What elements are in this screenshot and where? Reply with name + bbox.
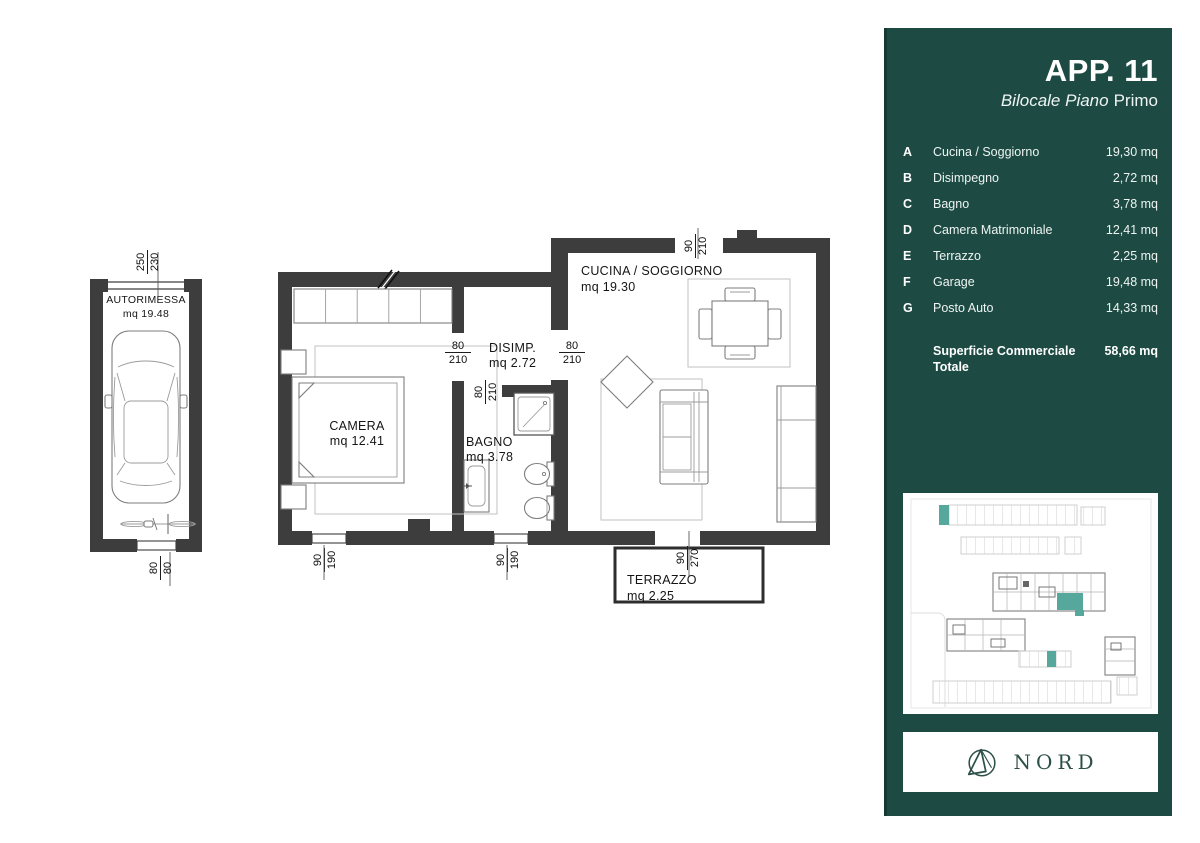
- bicycle-icon: [120, 514, 196, 534]
- room-name: Cucina / Soggiorno: [933, 145, 1106, 159]
- subtitle-italic: Bilocale Piano: [1001, 91, 1109, 110]
- svg-text:90: 90: [312, 554, 324, 566]
- dim-camera-door: 80 210: [445, 340, 471, 366]
- floor-plan-drawing: 250 230 80 80 AUTORIMESSA mq 19.48: [0, 0, 884, 843]
- sink: [462, 460, 489, 512]
- bagno-area: mq 3.78: [466, 450, 513, 464]
- north-indicator: NORD: [903, 732, 1158, 792]
- car-icon: [105, 331, 187, 503]
- room-name: Disimpegno: [933, 171, 1113, 185]
- total-label: Superficie Commerciale Totale: [933, 343, 1085, 376]
- room-row-d: D Camera Matrimoniale 12,41 mq: [903, 223, 1158, 249]
- floorplan-page: 250 230 80 80 AUTORIMESSA mq 19.48: [0, 0, 1200, 843]
- bagno-label: BAGNO: [466, 435, 513, 449]
- svg-text:270: 270: [689, 549, 701, 567]
- bidet: [525, 496, 555, 520]
- room-row-g: G Posto Auto 14,33 mq: [903, 301, 1158, 327]
- room-letter: D: [903, 223, 933, 237]
- svg-text:80: 80: [148, 562, 160, 574]
- svg-text:210: 210: [563, 354, 581, 366]
- room-area: 3,78 mq: [1113, 197, 1158, 211]
- terrazzo-label: TERRAZZO: [627, 573, 697, 587]
- dim-bagno-door: 80 210: [473, 380, 499, 404]
- total-value: 58,66 mq: [1104, 343, 1158, 358]
- room-area: 19,30 mq: [1106, 145, 1158, 159]
- svg-text:190: 190: [326, 551, 338, 569]
- highlight-garage: [1047, 651, 1056, 667]
- room-letter: F: [903, 275, 933, 289]
- dim-entry-door: 80 210: [559, 340, 585, 366]
- info-panel: APP. 11 Bilocale PianoPrimo A Cucina / S…: [884, 28, 1172, 816]
- room-letter: A: [903, 145, 933, 159]
- room-row-c: C Bagno 3,78 mq: [903, 197, 1158, 223]
- dim-camera-window: 90 190: [312, 548, 338, 572]
- room-area: 12,41 mq: [1106, 223, 1158, 237]
- room-name: Posto Auto: [933, 301, 1106, 315]
- room-letter: G: [903, 301, 933, 315]
- room-row-a: A Cucina / Soggiorno 19,30 mq: [903, 145, 1158, 171]
- room-letter: E: [903, 249, 933, 263]
- bagno-room: BAGNO mq 3.78 90 190: [462, 393, 554, 580]
- dim-cucina-window: 90 210: [683, 234, 709, 258]
- highlight-posto-auto: [939, 505, 949, 525]
- garage-label: AUTORIMESSA: [106, 294, 186, 306]
- dim-bagno-window: 90 190: [495, 548, 521, 572]
- nord-label: NORD: [1014, 750, 1099, 774]
- svg-text:190: 190: [509, 551, 521, 569]
- room-row-b: B Disimpegno 2,72 mq: [903, 171, 1158, 197]
- svg-text:80: 80: [162, 562, 174, 574]
- svg-text:90: 90: [683, 240, 695, 252]
- svg-text:210: 210: [697, 237, 709, 255]
- apartment-subtitle: Bilocale PianoPrimo: [903, 91, 1158, 111]
- disimpegno-area: mq 2.72: [489, 356, 536, 370]
- dining-table: [688, 279, 790, 367]
- shower: [514, 393, 554, 435]
- disimpegno-label: DISIMP.: [489, 341, 536, 355]
- site-plan-thumbnail: [903, 493, 1158, 714]
- garage-area: mq 19.48: [123, 308, 169, 320]
- room-name: Camera Matrimoniale: [933, 223, 1106, 237]
- left-building: [947, 619, 1025, 651]
- camera-area: mq 12.41: [330, 434, 385, 448]
- room-name: Bagno: [933, 197, 1113, 211]
- room-letter: C: [903, 197, 933, 211]
- kitchen-counter: [777, 386, 816, 522]
- svg-text:90: 90: [675, 552, 687, 564]
- cucina-room: CUCINA / SOGGIORNO mq 19.30 90 210: [581, 228, 816, 522]
- right-building: [1105, 637, 1135, 675]
- toilet: [525, 462, 555, 486]
- main-building: [993, 573, 1105, 616]
- sofa: [601, 356, 708, 520]
- panel-header: APP. 11 Bilocale PianoPrimo: [903, 54, 1158, 111]
- apartment-title: APP. 11: [903, 54, 1158, 88]
- terrazzo-area: mq 2.25: [627, 589, 674, 603]
- room-row-f: F Garage 19,48 mq: [903, 275, 1158, 301]
- svg-text:80: 80: [452, 340, 464, 352]
- total-row: Superficie Commerciale Totale 58,66 mq: [903, 343, 1158, 376]
- svg-text:230: 230: [149, 253, 161, 271]
- dim-garage-door: 250 230: [135, 250, 161, 274]
- wardrobe: [294, 289, 452, 323]
- svg-text:80: 80: [473, 386, 485, 398]
- room-area: 14,33 mq: [1106, 301, 1158, 315]
- room-name: Garage: [933, 275, 1106, 289]
- room-area: 2,72 mq: [1113, 171, 1158, 185]
- cucina-label: CUCINA / SOGGIORNO: [581, 264, 723, 278]
- room-list: A Cucina / Soggiorno 19,30 mq B Disimpeg…: [903, 145, 1158, 327]
- svg-text:80: 80: [566, 340, 578, 352]
- room-letter: B: [903, 171, 933, 185]
- room-area: 2,25 mq: [1113, 249, 1158, 263]
- camera-label: CAMERA: [329, 419, 385, 433]
- room-row-e: E Terrazzo 2,25 mq: [903, 249, 1158, 275]
- room-area: 19,48 mq: [1106, 275, 1158, 289]
- svg-text:210: 210: [449, 354, 467, 366]
- highlight-apartment: [1057, 593, 1083, 610]
- room-name: Terrazzo: [933, 249, 1113, 263]
- cucina-area: mq 19.30: [581, 280, 636, 294]
- nord-compass-icon: [963, 743, 1001, 781]
- svg-text:210: 210: [487, 383, 499, 401]
- svg-text:250: 250: [135, 253, 147, 271]
- subtitle-regular: Primo: [1114, 91, 1158, 110]
- coffee-table: [601, 356, 653, 408]
- svg-text:90: 90: [495, 554, 507, 566]
- garage-plan: 250 230 80 80 AUTORIMESSA mq 19.48: [90, 250, 202, 586]
